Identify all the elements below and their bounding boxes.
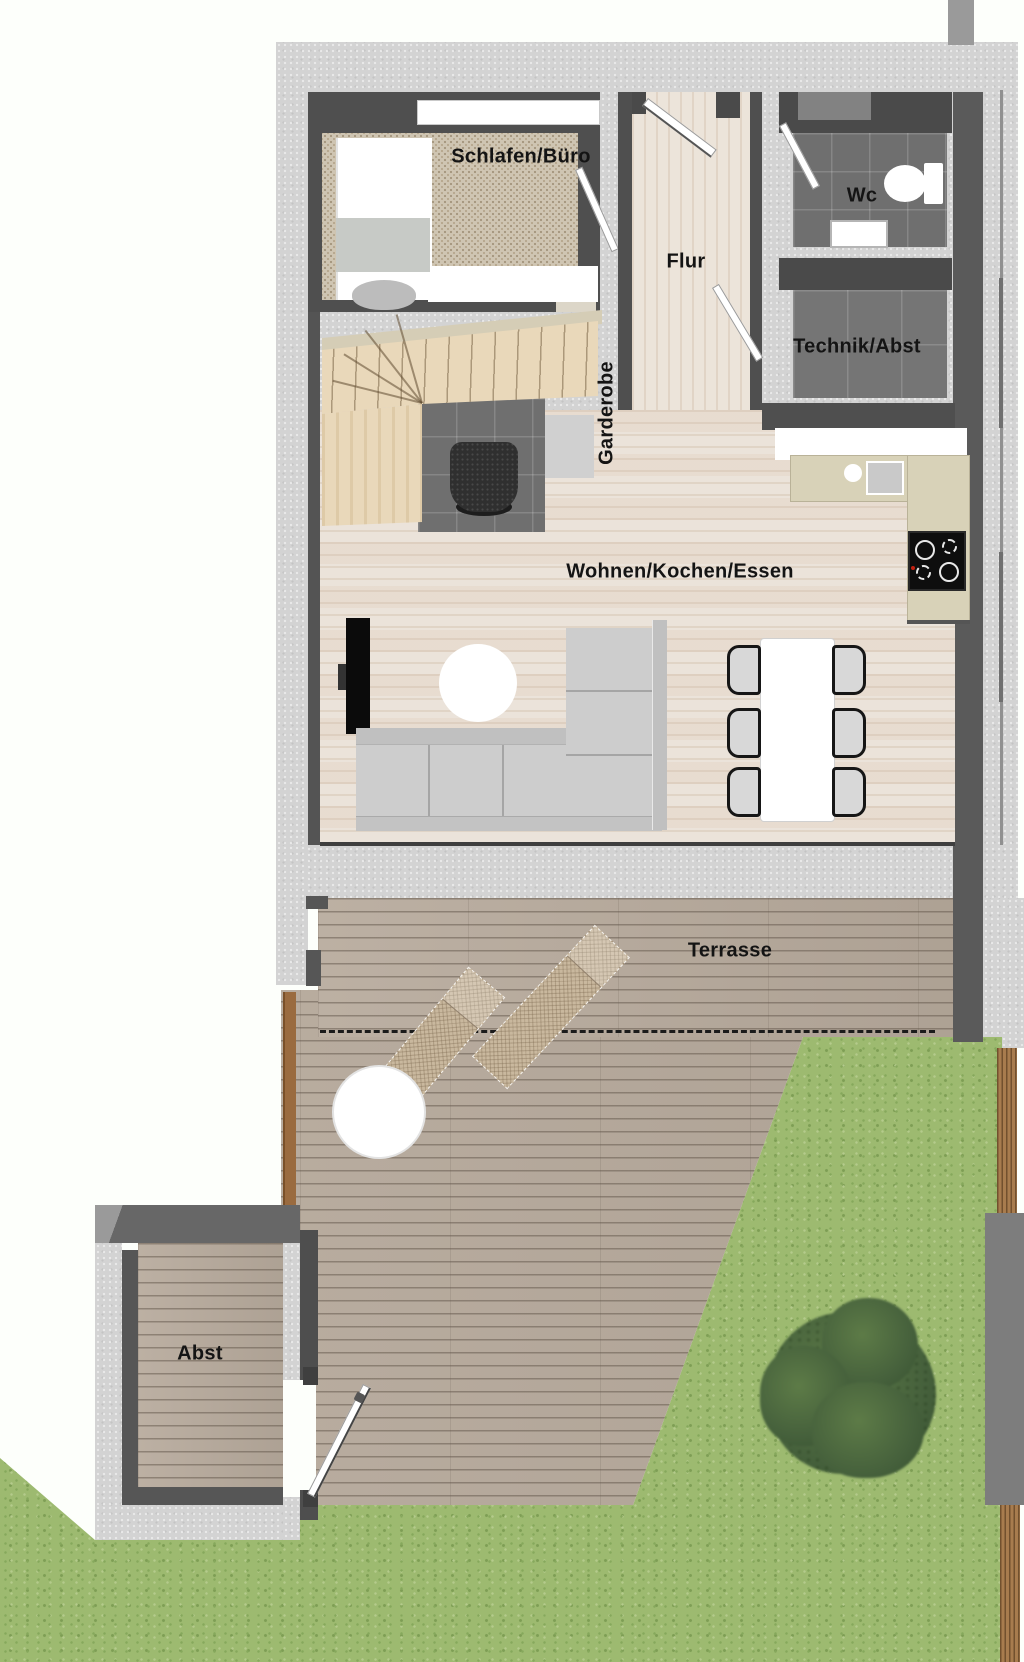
dining-chair <box>832 645 866 695</box>
right-wall-window-line <box>999 278 1003 428</box>
kitchen-counter-end-edge <box>907 620 970 624</box>
cooktop-indicator-light <box>911 566 915 570</box>
right-wall-window-line <box>999 552 1003 702</box>
chimney-block <box>948 0 974 45</box>
room-label-flur: Flur <box>667 251 706 274</box>
entrance-jamb <box>716 92 740 118</box>
room-label-schlafen-buero: Schlafen/Büro <box>451 146 590 169</box>
flur-floor <box>632 92 750 460</box>
cooktop <box>908 531 966 591</box>
wc-window <box>798 92 871 120</box>
flur-right-wall-face <box>750 92 762 414</box>
shed-roof-edge <box>95 1205 300 1243</box>
flur-left-wall-face <box>618 92 632 460</box>
bedroom-window <box>417 100 600 125</box>
kitchen-back-wall-face <box>762 403 955 430</box>
cooktop-burner <box>939 562 959 582</box>
bedroom-stool <box>352 280 416 310</box>
tree <box>760 1298 944 1482</box>
living-left-wall-face <box>308 312 320 845</box>
wc-sink <box>830 220 888 248</box>
dining-chair <box>832 708 866 758</box>
room-label-wc: Wc <box>847 185 878 208</box>
room-label-abst: Abst <box>177 1343 223 1366</box>
cooktop-burner <box>916 565 931 580</box>
room-label-technik-abst: Technik/Abst <box>793 336 921 359</box>
shed-right-wall <box>283 1497 300 1540</box>
toilet-tank <box>924 163 943 204</box>
kitchen-sink-round <box>844 464 862 482</box>
dining-chair <box>727 708 761 758</box>
room-label-garderobe: Garderobe <box>596 361 619 465</box>
cooktop-burner <box>915 540 935 560</box>
terrace-left-wall <box>276 845 308 985</box>
floor-plan: Terrasse Schlafen/Büro Flur Wc Technik/A… <box>0 0 1024 1662</box>
cooktop-burner <box>942 539 957 554</box>
wood-fence <box>997 1048 1017 1213</box>
dining-chair <box>832 767 866 817</box>
tv <box>346 618 370 734</box>
wood-fence <box>1000 1505 1020 1662</box>
toilet-bowl <box>884 165 926 202</box>
technik-top-wall-face <box>779 258 952 290</box>
room-label-terrasse: Terrasse <box>688 940 772 963</box>
dining-chair <box>727 645 761 695</box>
shed-left-wall <box>95 1243 122 1540</box>
dining-chair <box>727 767 761 817</box>
room-label-wohnen-kochen-essen: Wohnen/Kochen/Essen <box>566 561 794 584</box>
dining-table <box>760 638 835 822</box>
bed-blanket <box>336 218 430 272</box>
neighbour-paving <box>985 1213 1024 1505</box>
tree-canopy-lobe <box>812 1382 924 1478</box>
sofa-back-right <box>652 620 667 830</box>
sideboard-panel <box>545 415 594 478</box>
sofa-front-edge <box>356 816 662 831</box>
south-wall-edge-line <box>320 842 955 846</box>
desk-sideboard <box>428 266 598 302</box>
shed-inner-wall-face-bottom <box>122 1487 283 1505</box>
party-wall-joint-line <box>1000 90 1003 845</box>
terrace-right-wall <box>983 898 1024 1048</box>
deck-corner-post <box>306 896 328 909</box>
office-chair <box>450 442 518 512</box>
terrace-deck <box>318 898 955 1037</box>
shed-right-wall <box>283 1243 300 1380</box>
shed-inner-wall-face-left <box>122 1250 138 1505</box>
garden-round-table <box>332 1065 426 1159</box>
kitchen-sink-basin <box>866 461 904 495</box>
round-rug <box>439 644 517 722</box>
sofa-seats-right <box>566 628 652 816</box>
shed-outer-wall-face-right <box>300 1230 318 1380</box>
tv-mount <box>338 664 346 690</box>
shed-bottom-wall <box>95 1505 300 1540</box>
deck-corner-post <box>306 950 321 986</box>
shed-door-jamb <box>303 1367 318 1385</box>
